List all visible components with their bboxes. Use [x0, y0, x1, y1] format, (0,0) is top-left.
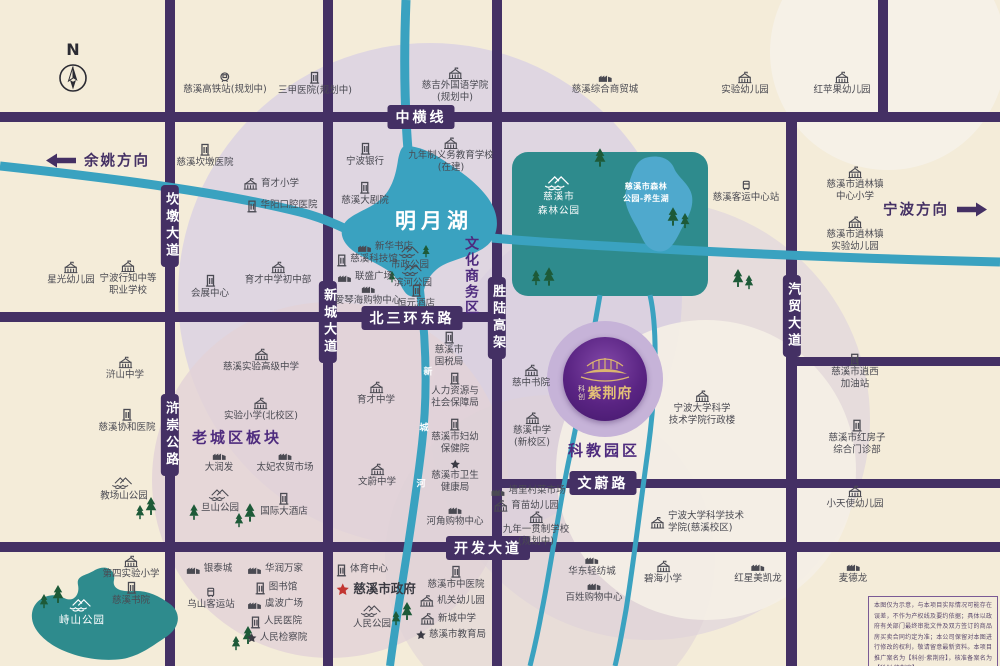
tree-icon: [244, 503, 257, 527]
tree-icon: [667, 207, 680, 231]
tree-icon: [52, 585, 65, 604]
poi-health-commission: 慈溪市卫生健康局: [431, 459, 479, 495]
building-icon: [336, 254, 347, 267]
poi-hr-social-security-bureau: 人力资源与社会保障局: [431, 372, 479, 411]
mall-icon: [337, 272, 352, 283]
mall-icon: [597, 72, 612, 83]
poi-jiaochangshan-park: 教场山公园: [100, 475, 148, 502]
poi-shiyan-kindergarten: 实验幼儿园: [721, 71, 769, 96]
poi-comprehensive-trade-city: 慈溪综合商贸城: [572, 72, 639, 96]
poi-label: 人民公园: [353, 618, 391, 630]
school-icon: [655, 560, 670, 572]
forest-park-label: 慈溪市森林公园: [538, 174, 580, 219]
poi-label: 慈溪协和医院: [98, 422, 155, 434]
poi-cixi-tcm-hospital: 慈溪市中医院: [427, 565, 484, 591]
direction-ningbo: 宁波方向: [883, 199, 989, 220]
tree-icon: [543, 267, 556, 291]
poi-label: 宁波行知中等职业学校: [99, 273, 156, 298]
star-icon: [247, 633, 257, 643]
school-icon: [447, 67, 462, 79]
tree-icon: [234, 513, 244, 528]
tree-icon: [680, 213, 691, 233]
mall-icon: [247, 599, 262, 610]
tree-icon: [594, 148, 607, 172]
poi-cixi-bus-center: 慈溪客运中心站: [713, 180, 780, 204]
poi-label: 恒元酒店: [397, 298, 435, 310]
poi-wushan-bus-station: 乌山客运站: [187, 587, 235, 611]
brand-large-label: 紫荆府: [588, 383, 633, 403]
poi-label: 慈溪综合商贸城: [572, 84, 639, 96]
poi-yintai-city: 银泰城: [186, 563, 233, 575]
school-icon: [123, 555, 138, 567]
poi-label: 教场山公园: [100, 490, 148, 502]
star-icon: [336, 583, 349, 596]
road-label-文蔚路: 文蔚路: [570, 471, 637, 495]
tree-icon: [531, 270, 542, 286]
poi-label: 红苹果幼儿园: [813, 84, 870, 96]
tree-icon: [543, 267, 556, 287]
mall-icon: [584, 554, 599, 565]
poi-library: 图书馆: [255, 582, 298, 595]
poi-label: 三甲医院(规划中): [278, 85, 352, 97]
school-icon: [443, 137, 458, 149]
poi-label: 宁波大学科学技术学院行政楼: [669, 403, 736, 428]
school-icon: [368, 381, 383, 393]
compass-icon: [56, 61, 90, 95]
poi-label: 慈溪市逍林镇中心小学: [826, 179, 883, 204]
mall-icon: [586, 580, 601, 591]
building-icon: [121, 408, 132, 421]
poi-label: 慈溪书院: [112, 595, 150, 607]
poi-yucai-middle-junior: 育才中学初中部: [245, 261, 312, 286]
building-icon: [255, 582, 266, 595]
building-icon: [336, 564, 347, 577]
poi-cixi-grand-theatre: 慈溪大剧院: [341, 181, 389, 207]
poi-label: 慈溪市政府: [353, 581, 416, 597]
poi-maternal-child-hospital: 慈溪市妇幼保健院: [431, 418, 479, 457]
building-icon: [849, 353, 860, 366]
road-label-浒崇公路: 浒崇公路: [161, 394, 179, 476]
poi-hongxing-meikailong: 红星美凯龙: [734, 561, 782, 585]
poi-shiyan-senior-high: 慈溪实验高级中学: [223, 348, 299, 373]
tree-icon: [189, 504, 200, 525]
school-icon: [847, 166, 862, 178]
road-east-stub: [790, 357, 1000, 366]
project-brand: 科创 紫荆府: [578, 383, 633, 403]
poi-xiaolin-shiyan-kindergarten: 慈溪市逍林镇实验幼儿园: [826, 216, 883, 254]
poi-redhouse-clinic: 慈溪市红房子综合门诊部: [828, 419, 885, 458]
tree-icon: [135, 505, 145, 520]
tree-icon: [234, 513, 244, 532]
poi-label: 育才中学初中部: [245, 274, 312, 286]
river-name-char: 城: [419, 421, 428, 434]
poi-nine-year-school-planned: 九年一贯制学校(规划中): [503, 511, 570, 549]
poi-label: 慈溪市卫生健康局: [431, 470, 479, 495]
tree-icon: [680, 213, 691, 229]
direction-label: 余姚方向: [84, 150, 150, 171]
road-label-中横线: 中横线: [388, 105, 455, 129]
poi-label: 人力资源与社会保障局: [431, 386, 479, 411]
poi-label: 育才小学: [261, 178, 299, 190]
poi-renmin-park: 人民公园: [353, 603, 391, 630]
direction-label: 宁波方向: [883, 199, 949, 220]
poi-label: 河角购物中心: [426, 516, 483, 528]
building-icon: [278, 492, 289, 505]
poi-cixi-science-museum: 慈溪科技馆: [336, 254, 398, 267]
poi-label: 华润万家: [265, 563, 303, 575]
building-icon: [450, 565, 461, 578]
mountain-icon: [68, 597, 96, 612]
tree-icon: [391, 611, 401, 626]
train-icon: [219, 72, 230, 83]
school-icon: [419, 595, 434, 607]
poi-huadong-textile-city: 华东轻纺城: [568, 554, 616, 578]
poi-label: 慈吉外国语学院(规划中): [422, 80, 489, 105]
school-icon: [420, 613, 435, 625]
poi-yubo-plaza: 虞波广场: [247, 598, 303, 610]
school-icon: [117, 356, 132, 368]
poi-education-bureau: 慈溪市教育局: [416, 629, 486, 641]
poi-international-hotel: 国际大酒店: [260, 492, 308, 518]
building-icon: [204, 274, 215, 287]
poi-yucai-middle: 育才中学: [357, 381, 395, 406]
lotus-emblem-icon: [577, 356, 633, 382]
poi-label: 慈溪市红房子综合门诊部: [828, 433, 885, 458]
district-label-文化商务区: 文化商务区: [461, 236, 481, 316]
poi-label: 华阳口腔医院: [260, 200, 317, 212]
building-icon: [449, 418, 460, 431]
poi-ciji-foreign-school: 慈吉外国语学院(规划中): [422, 67, 489, 105]
poi-cixi-hsr-station: 慈溪高铁站(规划中): [183, 72, 266, 96]
poi-qianglicun-market: 墙里村菜市场: [490, 485, 565, 497]
poi-label: 慈溪市逍西加油站: [831, 367, 879, 392]
tree-icon: [231, 636, 241, 655]
building-icon: [449, 372, 460, 385]
poi-label: 麦德龙: [839, 573, 868, 585]
building-icon: [851, 419, 862, 432]
road-label-坎墩大道: 坎墩大道: [161, 185, 179, 267]
mall-icon: [186, 564, 201, 575]
arrow-icon: [955, 202, 989, 216]
poi-label: 会展中心: [191, 288, 229, 300]
poi-label: 红星美凯龙: [734, 573, 782, 585]
poi-label: 浒山中学: [106, 369, 144, 381]
mountain-icon: [358, 603, 385, 617]
tree-icon: [744, 275, 754, 290]
mall-icon: [490, 486, 505, 497]
poi-label: 新城中学: [438, 613, 476, 625]
school-icon: [694, 390, 709, 402]
poi-baixing-mall: 百姓购物中心: [565, 580, 622, 604]
school-icon: [270, 261, 285, 273]
tree-icon: [135, 505, 145, 524]
tree-icon: [401, 602, 414, 625]
building-icon: [359, 142, 370, 155]
river-name-char: 河: [416, 477, 425, 490]
tree-icon: [732, 269, 745, 292]
poi-xingzhi-vocational: 宁波行知中等职业学校: [99, 260, 156, 298]
poi-label: 实验幼儿园: [721, 84, 769, 96]
poi-maidelong: 麦德龙: [839, 561, 868, 585]
poi-label: 联盛广场: [355, 271, 393, 283]
poi-xiehe-hospital: 慈溪协和医院: [98, 408, 155, 434]
school-icon: [847, 485, 862, 497]
district-label-科教园区: 科教园区: [568, 440, 640, 461]
yangsheng-lake-label: 慈溪市森林公园-养生湖: [623, 181, 669, 205]
mall-icon: [277, 450, 292, 461]
road-north-right-road: [878, 0, 888, 117]
poi-label: 华东轻纺城: [568, 566, 616, 578]
poi-label: 慈溪市国税局: [435, 345, 464, 370]
mall-icon: [845, 561, 860, 572]
poi-xincheng-middle: 新城中学: [420, 613, 476, 625]
mountain-icon: [543, 174, 575, 191]
poi-label: 宁波银行: [346, 156, 384, 168]
poi-label: 慈溪市逍林镇实验幼儿园: [826, 229, 883, 254]
poi-label: 第四实验小学: [102, 568, 159, 580]
poi-label: 慈溪高铁站(规划中): [183, 84, 266, 96]
poi-darunfa: 大润发: [205, 450, 234, 474]
poi-label: 国际大酒店: [260, 506, 308, 518]
poi-label: 实验小学(北校区): [224, 410, 298, 422]
tree-icon: [391, 611, 401, 630]
poi-xiaoxi-gas-station: 慈溪市逍西加油站: [831, 353, 879, 392]
poi-state-tax-bureau: 慈溪市国税局: [435, 331, 464, 370]
poi-label: 大润发: [205, 462, 234, 474]
bus-icon: [741, 180, 750, 191]
tree-icon: [531, 270, 542, 290]
poi-sports-center: 体育中心: [336, 564, 388, 577]
tree-icon: [732, 269, 745, 288]
road-label-胜陆高架: 胜陆高架: [488, 277, 506, 359]
poi-xiaolin-central-primary: 慈溪市逍林镇中心小学: [826, 166, 883, 204]
poi-hongpingguo-kindergarten: 红苹果幼儿园: [813, 71, 870, 96]
building-icon: [410, 284, 421, 297]
building-icon: [199, 143, 210, 156]
arrow-icon: [44, 153, 78, 167]
building-icon: [250, 616, 261, 629]
poi-huarun-wanjia: 华润万家: [247, 563, 303, 575]
school-icon: [523, 364, 538, 376]
tree-icon: [189, 504, 200, 521]
poi-renmin-procuratorate: 人民检察院: [247, 632, 308, 644]
poi-exhibition-center: 会展中心: [191, 274, 229, 300]
compass-n-label: N: [56, 40, 90, 59]
poi-hengyuan-hotel: 恒元酒店: [397, 284, 435, 310]
school-icon: [524, 412, 539, 424]
poi-label: 慈溪坎墩医院: [176, 157, 233, 169]
star-icon: [450, 459, 460, 469]
poi-label: 小天使幼儿园: [826, 498, 883, 510]
poi-ningbo-bank: 宁波银行: [346, 142, 384, 168]
poi-cixi-government: 慈溪市政府: [336, 581, 416, 597]
poi-label: 银泰城: [204, 563, 233, 575]
poi-label: 墙里村菜市场: [508, 485, 565, 497]
mall-icon: [750, 561, 765, 572]
mountain-icon: [396, 244, 423, 258]
poi-label: 图书馆: [269, 582, 298, 594]
poi-label: 慈溪市教育局: [429, 629, 486, 641]
road-qimao-avenue: [786, 112, 797, 666]
poi-wenwei-middle: 文蔚中学: [358, 463, 396, 488]
tree-icon: [244, 503, 257, 523]
tree-icon: [39, 594, 49, 613]
poi-cixi-academy: 慈溪书院: [112, 581, 150, 607]
poi-nbu-cixi-campus: 宁波大学科学技术学院(慈溪校区): [650, 511, 744, 536]
building-icon: [443, 331, 454, 344]
school-icon: [847, 216, 862, 228]
district-label-老城区板块: 老城区板块: [192, 427, 282, 448]
mall-icon: [247, 564, 262, 575]
tree-icon: [401, 602, 414, 621]
mall-icon: [211, 450, 226, 461]
school-icon: [650, 517, 665, 529]
poi-label: 爱琴海购物中心: [335, 295, 402, 307]
school-icon: [63, 261, 78, 273]
building-icon: [359, 181, 370, 194]
bus-icon: [206, 587, 215, 598]
poi-label: 九年制义务教育学校(在建): [408, 150, 494, 175]
poi-label: 人民检察院: [260, 632, 308, 644]
poi-label: 慈溪中学(新校区): [513, 425, 551, 450]
building-icon: [309, 71, 320, 84]
poi-label: 旦山公园: [201, 502, 239, 514]
poi-hejiao-mall: 河角购物中心: [426, 504, 483, 528]
poi-shiyan-primary-north: 实验小学(北校区): [224, 397, 298, 422]
tree-icon: [667, 207, 680, 227]
poi-label: 慈溪市中医院: [427, 579, 484, 591]
compass: N: [56, 40, 90, 99]
poi-label: 星光幼儿园: [47, 274, 95, 286]
poi-yucai-primary: 育才小学: [243, 178, 299, 190]
mall-icon: [357, 242, 372, 253]
school-icon: [243, 178, 258, 190]
school-icon: [253, 348, 268, 360]
poi-cizhong-academy: 慈中书院: [512, 364, 550, 389]
poi-cixi-middle-new-campus: 慈溪中学(新校区): [513, 412, 551, 450]
poi-label: 九年一贯制学校(规划中): [503, 524, 570, 549]
mountain-icon: [206, 487, 233, 501]
poi-xingguang-kindergarten: 星光幼儿园: [47, 261, 95, 286]
poi-label: 慈中书院: [512, 377, 550, 389]
poi-danshan-park: 旦山公园: [201, 487, 239, 514]
poi-label: 体育中心: [350, 564, 388, 576]
poi-huayang-dental: 华阳口腔医院: [246, 200, 317, 213]
brand-small-label: 科创: [578, 385, 585, 401]
project-logo: 科创 紫荆府: [563, 337, 647, 421]
tree-icon: [594, 148, 607, 168]
poi-label: 慈溪客运中心站: [713, 192, 780, 204]
road-label-汽贸大道: 汽贸大道: [783, 275, 801, 357]
map-canvas: 明月湖 慈溪市森林公园 慈溪市森林公园-养生湖 峙山公园 N 科创: [0, 0, 1000, 666]
tree-icon: [744, 275, 754, 294]
poi-label: 育才中学: [357, 394, 395, 406]
poi-label: 机关幼儿园: [437, 595, 485, 607]
school-icon: [737, 71, 752, 83]
zhishan-park-label: 峙山公园: [59, 597, 105, 627]
poi-label: 人民医院: [264, 616, 302, 628]
disclaimer-box: 本图仅为示意，与本项目实际情况可能存在误差，不作为产权线及要约依据；具体以政府有…: [868, 596, 998, 666]
poi-label: 虞波广场: [265, 598, 303, 610]
tree-icon: [231, 636, 241, 651]
tree-icon: [39, 594, 49, 609]
poi-kandun-hospital: 慈溪坎墩医院: [176, 143, 233, 169]
poi-no4-shiyan-primary: 第四实验小学: [102, 555, 159, 580]
school-icon: [253, 397, 268, 409]
poi-aiqinhai-mall: 爱琴海购物中心: [335, 283, 402, 307]
tree-icon: [52, 585, 65, 608]
disclaimer-text: 本图仅为示意，与本项目实际情况可能存在误差，不作为产权线及要约依据；具体以政府有…: [874, 601, 992, 666]
poi-label: 宁波大学科学技术学院(慈溪校区): [668, 511, 744, 536]
poi-label: 文蔚中学: [358, 476, 396, 488]
mountain-icon: [399, 262, 426, 276]
poi-liansheng-plaza: 联盛广场: [337, 271, 393, 283]
poi-nine-year-school-building: 九年制义务教育学校(在建): [408, 137, 494, 175]
poi-label: 慈溪大剧院: [341, 195, 389, 207]
star-icon: [416, 630, 426, 640]
poi-label: 慈溪市妇幼保健院: [431, 432, 479, 457]
building-icon: [246, 200, 257, 213]
school-icon: [528, 511, 543, 523]
road-kandun-husong: [165, 0, 175, 666]
poi-jiguan-kindergarten: 机关幼儿园: [419, 595, 485, 607]
poi-sanjia-hospital: 三甲医院(规划中): [278, 71, 352, 97]
mall-icon: [447, 504, 462, 515]
poi-label: 碧海小学: [644, 573, 682, 585]
moon-lake-label: 明月湖: [395, 205, 473, 235]
poi-label: 百姓购物中心: [565, 592, 622, 604]
school-icon: [120, 260, 135, 272]
poi-bihai-primary: 碧海小学: [644, 560, 682, 585]
mountain-icon: [110, 475, 137, 489]
school-icon: [369, 463, 384, 475]
poi-nbu-admin-building: 宁波大学科学技术学院行政楼: [669, 390, 736, 428]
poi-taifei-market: 太妃农贸市场: [256, 450, 313, 474]
school-icon: [834, 71, 849, 83]
building-icon: [125, 581, 136, 594]
poi-renmin-hospital: 人民医院: [250, 616, 302, 629]
poi-label: 慈溪实验高级中学: [223, 361, 299, 373]
poi-label: 乌山客运站: [187, 599, 235, 611]
poi-label: 太妃农贸市场: [256, 462, 313, 474]
poi-angel-kindergarten: 小天使幼儿园: [826, 485, 883, 510]
mall-icon: [360, 283, 375, 294]
direction-yuyao: 余姚方向: [44, 150, 150, 171]
poi-hushan-middle: 浒山中学: [106, 356, 144, 381]
